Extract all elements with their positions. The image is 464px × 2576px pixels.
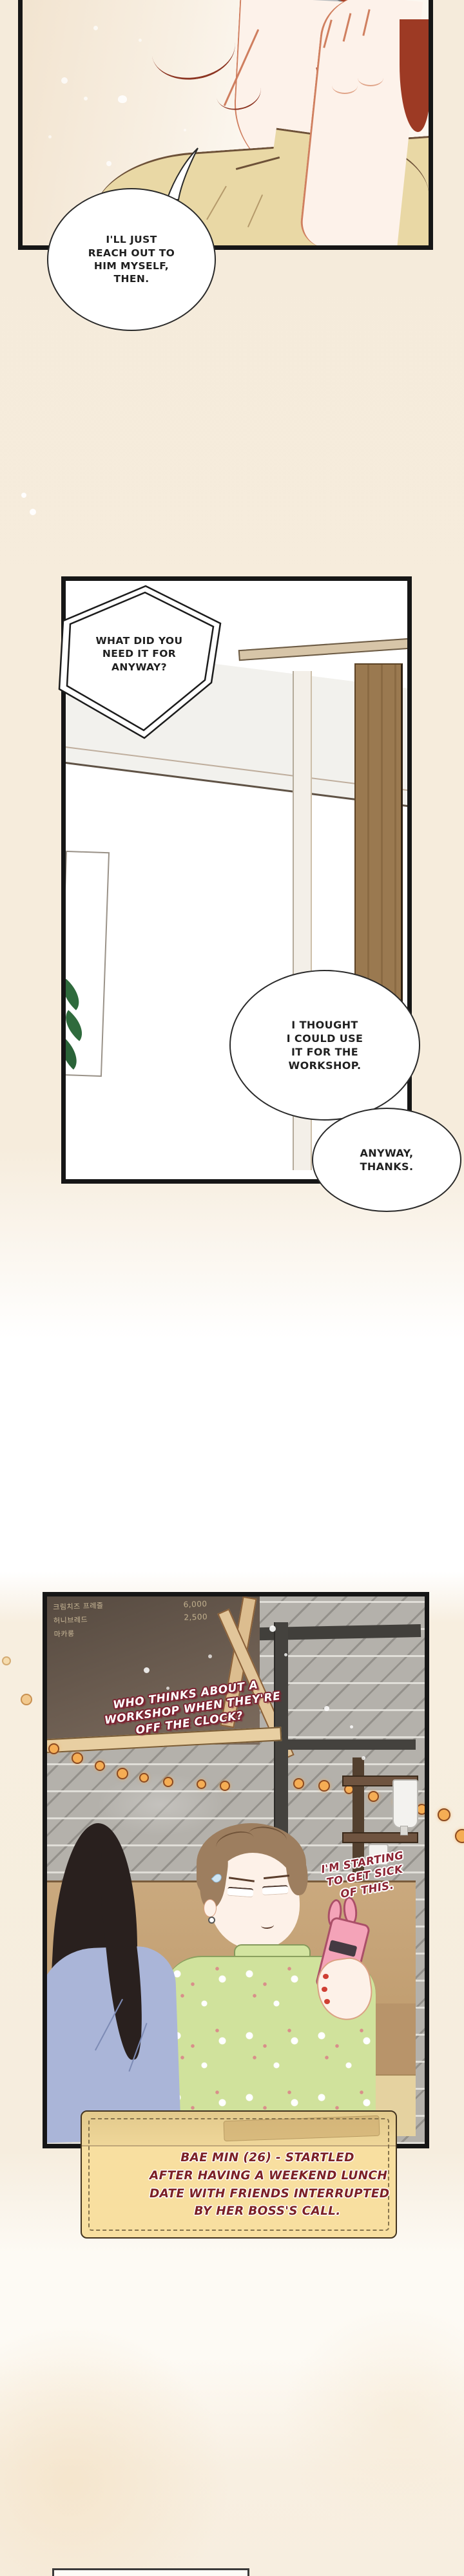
sparkle-dot <box>61 77 68 84</box>
caption-line: BY HER BOSS'S CALL. <box>150 2202 385 2221</box>
menu-board-prices: 6,000 2,500 <box>183 1597 208 1624</box>
speech-bubble-workshop: I THOUGHT I COULD USE IT FOR THE WORKSHO… <box>229 970 420 1121</box>
sparkle-dot <box>269 1625 276 1632</box>
sparkle-dot <box>362 1756 365 1760</box>
baemin-ear <box>204 1899 217 1917</box>
leaf-art <box>61 1010 90 1041</box>
bokeh-dot <box>2 1656 11 1665</box>
bubble-line: I'LL JUST <box>88 233 175 246</box>
sparkle-dot <box>48 135 52 138</box>
string-light <box>318 1780 330 1792</box>
sparkle-dot <box>84 97 88 100</box>
speech-bubble-reach-out: I'LL JUST REACH OUT TO HIM MYSELF, THEN. <box>47 188 216 331</box>
bokeh-dot <box>21 1694 32 1705</box>
bubble-line: I THOUGHT <box>287 1018 363 1032</box>
door-lintel <box>238 638 411 661</box>
panel-3-cafe: 크림치즈 프레즐 허니브레드 마카롱 6,000 2,500 <box>43 1592 429 2148</box>
bubble-tail <box>163 147 202 201</box>
caption-note-box: BAE MIN (26) - STARTLED AFTER HAVING A W… <box>81 2110 397 2239</box>
knuckle-arc <box>332 77 358 94</box>
knuckle-arc <box>358 70 383 86</box>
sparkle-dot <box>30 509 36 515</box>
bubble-line: REACH OUT TO <box>88 247 175 260</box>
sparkle-dot <box>21 493 26 498</box>
bokeh-dot <box>438 1808 450 1821</box>
string-light <box>293 1778 304 1789</box>
bubble-line: HIM MYSELF, <box>88 260 175 272</box>
baemin-eye <box>262 1885 289 1895</box>
string-light <box>117 1768 128 1779</box>
string-light <box>72 1752 83 1764</box>
sparkle-dot <box>166 1687 169 1690</box>
bubble-line: ANYWAY, <box>360 1146 414 1160</box>
bubble-line: THEN. <box>88 272 175 285</box>
menu-item: 허니브레드 <box>53 1613 104 1629</box>
string-light <box>197 1779 206 1789</box>
leaf-art <box>61 1038 85 1070</box>
sparkle-dot <box>106 161 111 166</box>
picture-frame <box>61 851 110 1077</box>
caption-line: DATE WITH FRIENDS INTERRUPTED <box>150 2185 385 2203</box>
sparkle-dot <box>184 129 186 131</box>
sparkle-dot <box>284 1653 287 1656</box>
sparkle-dot <box>144 1667 150 1673</box>
menu-board-items: 크림치즈 프레즐 허니브레드 마카롱 <box>53 1600 104 1642</box>
sparkle-heart <box>118 95 127 103</box>
string-light <box>368 1791 379 1802</box>
speech-bubble-thanks: ANYWAY, THANKS. <box>312 1108 461 1212</box>
baemin-earring <box>208 1917 215 1924</box>
string-light <box>48 1743 59 1754</box>
painted-nail <box>323 1974 329 1979</box>
string-light <box>139 1773 149 1783</box>
caption-line: AFTER HAVING A WEEKEND LUNCH <box>150 2167 385 2185</box>
menu-item: 크림치즈 프레즐 <box>53 1600 104 1615</box>
next-panel-sliver <box>52 2568 249 2576</box>
menu-price: 6,000 <box>183 1597 208 1611</box>
string-light <box>163 1777 173 1787</box>
sparkle-dot <box>350 1725 353 1728</box>
bubble-line: ANYWAY? <box>55 661 223 674</box>
painted-nail <box>324 1999 330 2004</box>
bokeh-dot <box>455 1829 464 1843</box>
bubble-line: I COULD USE <box>287 1032 363 1045</box>
sparkle-dot <box>208 1654 212 1658</box>
bubble-line: WHAT DID YOU <box>55 634 223 647</box>
sparkle-dot <box>139 39 142 42</box>
comic-page: I'LL JUST REACH OUT TO HIM MYSELF, THEN.… <box>0 0 464 2576</box>
menu-item: 마카롱 <box>53 1626 104 1642</box>
painted-nail <box>322 1987 327 1992</box>
bubble-line: THANKS. <box>360 1160 414 1173</box>
menu-price: 2,500 <box>184 1611 208 1625</box>
bubble-line: NEED IT FOR <box>55 647 223 660</box>
dispenser-spout <box>400 1826 408 1835</box>
string-light <box>95 1761 105 1771</box>
hex-bubble-text: WHAT DID YOU NEED IT FOR ANYWAY? <box>55 634 223 674</box>
window-mullion-horizontal <box>287 1739 416 1750</box>
water-dispenser <box>392 1779 418 1828</box>
speech-bubble-text: I'LL JUST REACH OUT TO HIM MYSELF, THEN. <box>88 233 175 286</box>
baemin-eye <box>227 1887 254 1898</box>
leaf-art <box>61 979 87 1010</box>
caption-line: BAE MIN (26) - STARTLED <box>150 2149 385 2167</box>
bubble-line: WORKSHOP. <box>287 1059 363 1072</box>
bubble-line: IT FOR THE <box>287 1045 363 1059</box>
caption-text: BAE MIN (26) - STARTLED AFTER HAVING A W… <box>82 2149 396 2221</box>
string-light <box>220 1781 230 1791</box>
sparkle-dot <box>93 26 98 30</box>
sparkle-dot <box>324 1706 329 1711</box>
